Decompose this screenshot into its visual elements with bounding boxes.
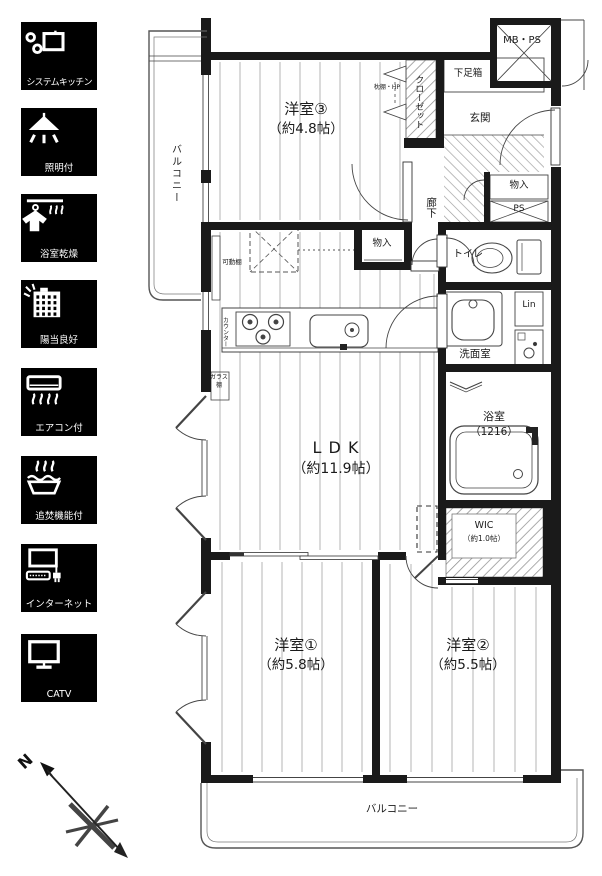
bath-name: 浴室 xyxy=(462,410,526,424)
amenity-label: システムキッチン xyxy=(21,75,97,88)
amenity-tile-internet: インターネット xyxy=(21,544,97,612)
movable-shelf-label: 可動棚 xyxy=(214,258,250,266)
shoe-box-label: 下足箱 xyxy=(444,68,492,80)
amenity-tile-system-kitchen: システムキッチン xyxy=(21,22,97,90)
amenity-tile-reheat: 追焚機能付 xyxy=(21,456,97,524)
bedroom2-size: （約5.5帖） xyxy=(408,657,528,674)
storage-kitchen-label: 物入 xyxy=(356,238,408,250)
amenity-label: インターネット xyxy=(21,596,97,610)
reheat-function-icon xyxy=(21,459,67,497)
glass-shelf-label: ガラス棚 xyxy=(208,374,230,389)
balcony-left-label: バルコニー xyxy=(168,126,181,221)
bedroom1-size: （約5.8帖） xyxy=(236,657,356,674)
balcony-bottom-label: バルコニー xyxy=(350,803,434,816)
floorplan-page: N システムキッチン 照明付 xyxy=(0,0,602,876)
ldk-name: L D K xyxy=(276,438,396,458)
toilet-label: トイレ xyxy=(446,249,490,262)
pipe-space-label: PS xyxy=(490,204,548,215)
closet-note-label: 枕棚・HP xyxy=(368,84,406,92)
bathroom-dryer-icon xyxy=(21,197,67,235)
amenity-tile-sunlight: 陽当良好 xyxy=(21,280,97,348)
sunlight-icon xyxy=(21,283,67,321)
amenity-tile-catv: CATV xyxy=(21,634,97,702)
lighting-icon xyxy=(21,111,67,149)
internet-icon xyxy=(21,547,67,585)
bedroom1-name: 洋室① xyxy=(236,636,356,655)
amenity-tile-air-conditioner: エアコン付 xyxy=(21,368,97,436)
amenity-label: CATV xyxy=(21,689,97,700)
bath-size: （1216） xyxy=(458,426,530,439)
wic-size: （約1.0帖） xyxy=(450,534,518,543)
compass-north-label: N xyxy=(14,750,37,773)
amenity-label: 追焚機能付 xyxy=(21,508,97,522)
ldk-size: （約11.9帖） xyxy=(276,461,396,479)
hallway-label: 廊下 xyxy=(424,186,437,228)
meter-box-label: MB・PS xyxy=(492,35,552,48)
amenity-label: 照明付 xyxy=(21,160,97,174)
system-kitchen-icon xyxy=(21,25,67,63)
amenity-tile-lighting: 照明付 xyxy=(21,108,97,176)
closet-label: クローゼット xyxy=(412,64,423,140)
bedroom2-name: 洋室② xyxy=(408,636,528,655)
entrance-label: 玄関 xyxy=(452,112,508,125)
air-conditioner-icon xyxy=(21,371,67,409)
bedroom3-name: 洋室③ xyxy=(246,100,366,119)
catv-icon xyxy=(21,637,67,675)
linen-label: Lin xyxy=(515,300,543,311)
washroom-label: 洗面室 xyxy=(440,348,510,361)
compass: N xyxy=(14,750,128,858)
amenity-label: 浴室乾燥 xyxy=(21,246,97,260)
amenity-label: エアコン付 xyxy=(21,420,97,434)
amenity-tile-bathroom-dryer: 浴室乾燥 xyxy=(21,194,97,262)
amenity-label: 陽当良好 xyxy=(21,332,97,346)
counter-label: カウンター xyxy=(221,313,229,351)
storage-hall-label: 物入 xyxy=(490,180,548,192)
wic-name: WIC xyxy=(456,520,512,532)
bedroom3-size: （約4.8帖） xyxy=(246,121,366,138)
